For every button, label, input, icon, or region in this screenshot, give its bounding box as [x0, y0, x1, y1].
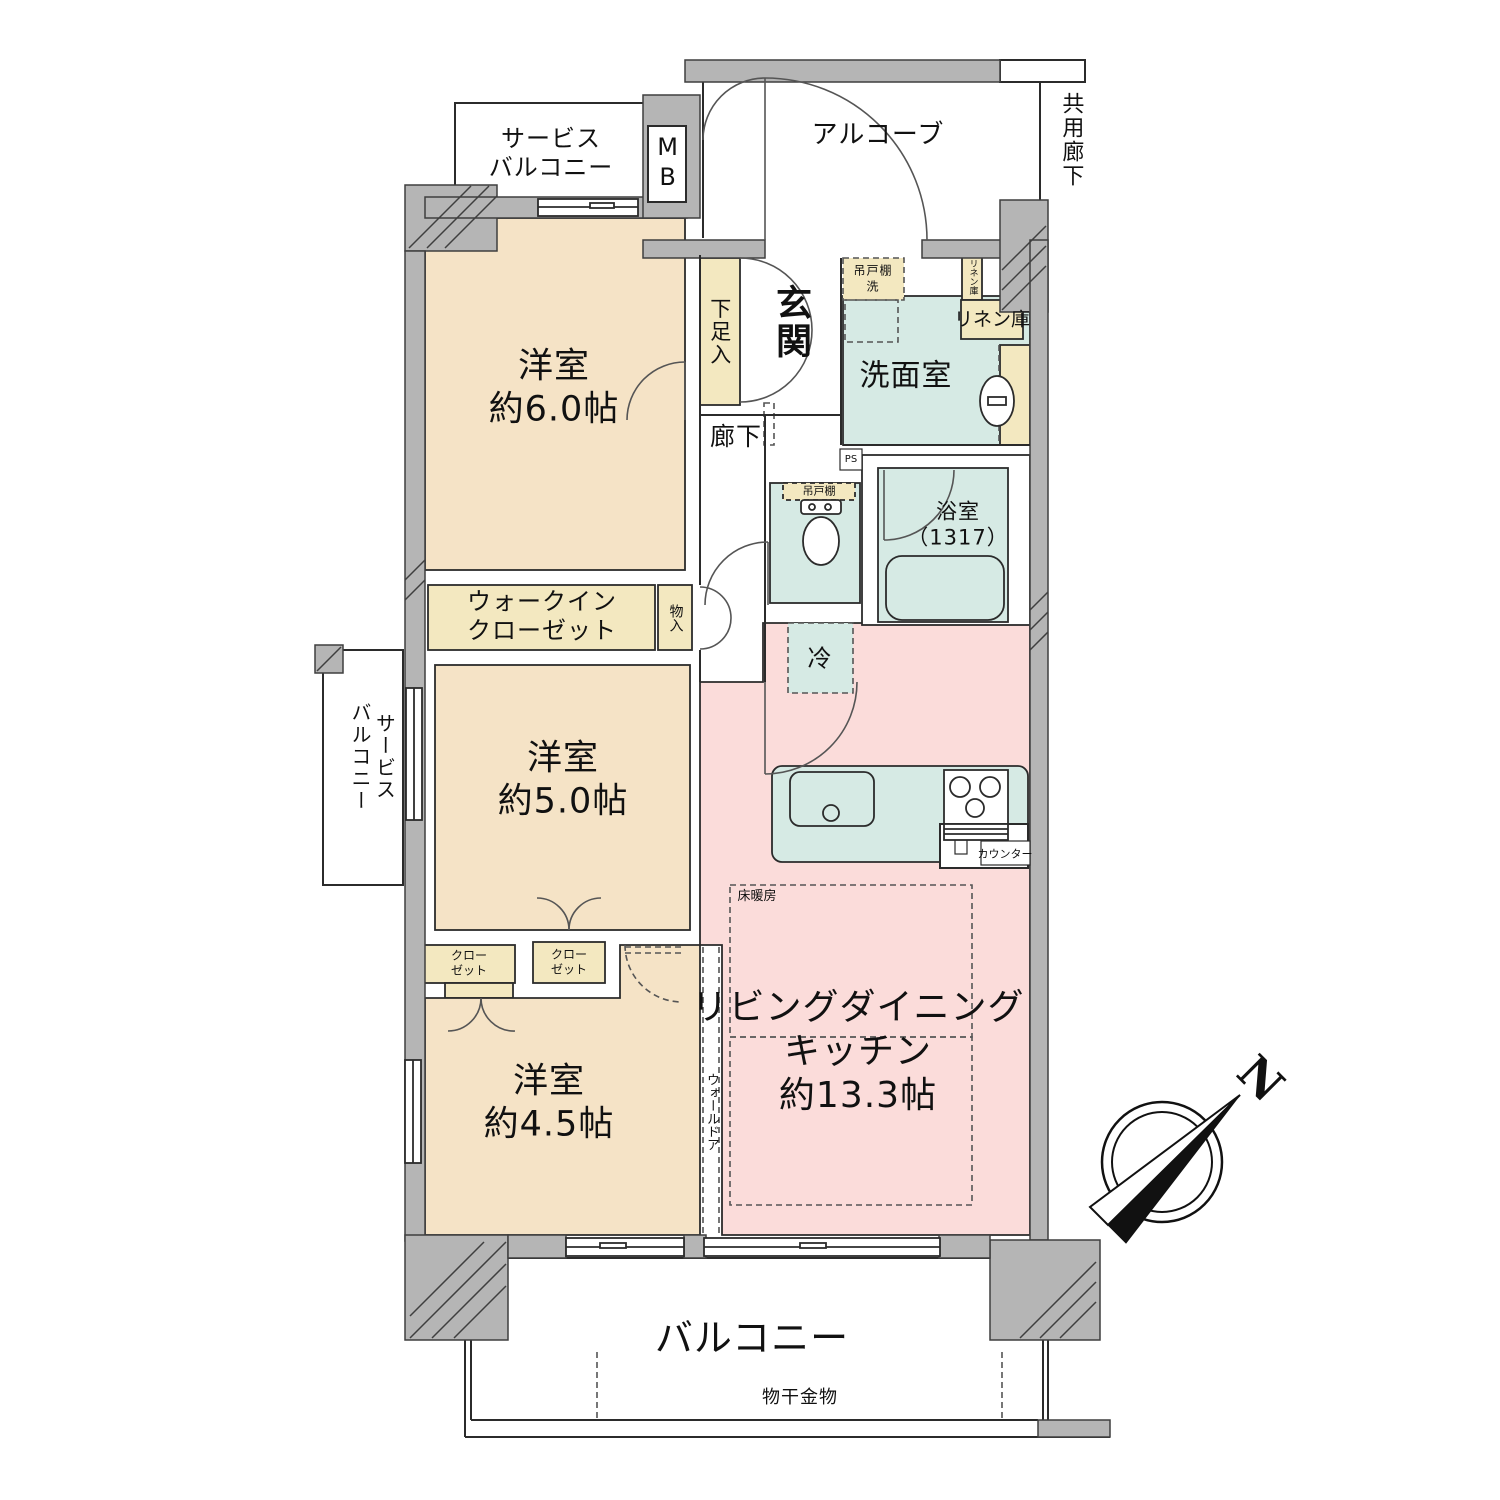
label-linen-cabinet-small: リネン庫: [967, 259, 978, 295]
label-bedroom-6: 洋室 約6.0帖: [489, 345, 620, 430]
label-storage-closet: 物入: [666, 604, 683, 632]
floor-plan-graphics: [0, 0, 1500, 1500]
floor-plan: サービス バルコニー MB アルコーブ 共用廊下 玄関 下足入 廊下 吊戸棚 洗…: [0, 0, 1500, 1500]
label-closet-a: クロー ゼット: [451, 948, 487, 977]
label-ps: PS: [845, 454, 857, 466]
label-hallway: 廊下: [710, 422, 762, 453]
label-laundry-hardware: 物干金物: [762, 1387, 838, 1409]
label-hanging-cupboard-toilet: 吊戸棚: [803, 484, 836, 497]
compass: [1090, 1095, 1240, 1243]
label-ldk: リビングダイニング キッチン 約13.3帖: [691, 986, 1024, 1118]
label-service-balcony-top: サービス バルコニー: [489, 125, 614, 184]
label-hanging-cupboard-wash: 吊戸棚 洗: [853, 263, 892, 294]
label-service-balcony-left: サービス バルコニー: [348, 702, 397, 812]
label-alcove: アルコーブ: [812, 120, 945, 152]
label-meter-box: MB: [652, 133, 681, 193]
label-closet-b: クロー ゼット: [551, 947, 587, 976]
label-bedroom-45: 洋室 約4.5帖: [484, 1060, 615, 1145]
label-walk-in-closet: ウォークイン クローゼット: [467, 588, 617, 647]
label-balcony: バルコニー: [655, 1315, 849, 1361]
label-shoe-cabinet: 下足入: [706, 298, 732, 367]
label-floor-heating: 床暖房: [737, 889, 776, 905]
label-entrance: 玄関: [768, 284, 812, 360]
label-refrigerator: 冷: [808, 644, 833, 673]
label-washroom: 洗面室: [860, 359, 953, 396]
label-common-corridor: 共用廊下: [1057, 92, 1084, 188]
label-bedroom-5: 洋室 約5.0帖: [498, 737, 629, 822]
label-counter: カウンター: [978, 847, 1033, 860]
label-linen-cabinet: リネン庫: [954, 308, 1030, 331]
label-bathroom: 浴室 （1317）: [907, 499, 1008, 550]
